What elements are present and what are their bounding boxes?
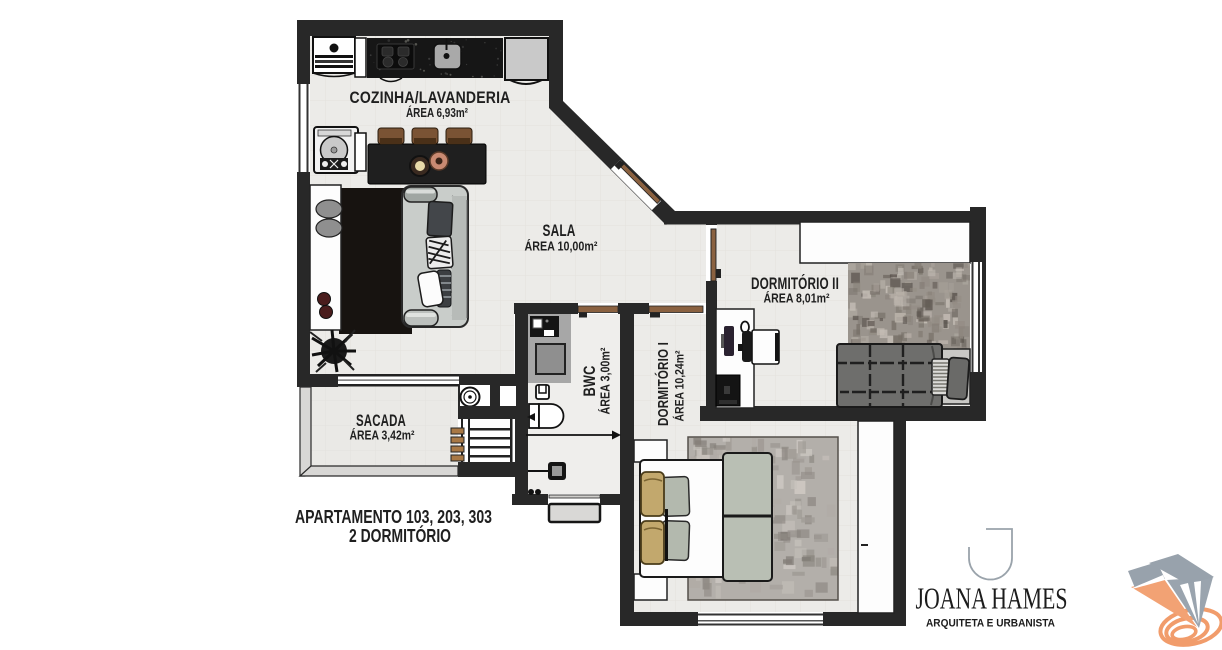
svg-text:SACADA: SACADA <box>356 412 406 430</box>
svg-text:DORMITÓRIO I: DORMITÓRIO I <box>654 342 672 426</box>
svg-text:APARTAMENTO 103, 203, 303: APARTAMENTO 103, 203, 303 <box>295 506 492 527</box>
svg-text:SALA: SALA <box>543 222 576 240</box>
svg-text:ÁREA 10,24m²: ÁREA 10,24m² <box>672 351 687 422</box>
svg-text:2 DORMITÓRIO: 2 DORMITÓRIO <box>349 525 451 546</box>
svg-text:ARQUITETA E URBANISTA: ARQUITETA E URBANISTA <box>926 618 1055 630</box>
svg-text:ÁREA 10,00m²: ÁREA 10,00m² <box>525 239 598 254</box>
svg-text:ÁREA 3,00m²: ÁREA 3,00m² <box>598 348 613 415</box>
svg-text:JOANA HAMES: JOANA HAMES <box>916 581 1068 616</box>
svg-text:BWC: BWC <box>581 366 599 397</box>
svg-text:ÁREA 8,01m²: ÁREA 8,01m² <box>764 291 830 306</box>
svg-text:ÁREA 3,42m²: ÁREA 3,42m² <box>350 428 415 443</box>
svg-text:ÁREA 6,93m²: ÁREA 6,93m² <box>406 105 468 120</box>
svg-text:COZINHA/LAVANDERIA: COZINHA/LAVANDERIA <box>350 89 511 107</box>
svg-text:DORMITÓRIO II: DORMITÓRIO II <box>751 274 839 293</box>
